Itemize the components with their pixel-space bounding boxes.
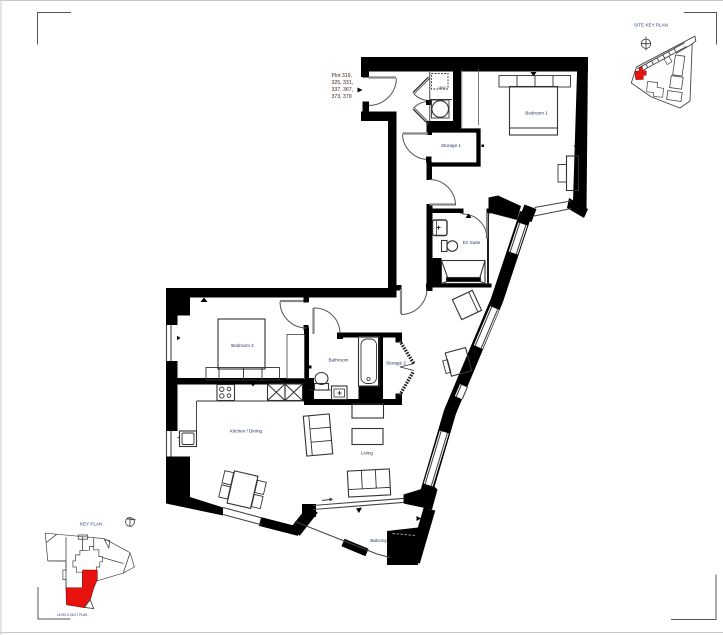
svg-text:Bedroom 1: Bedroom 1 <box>525 111 548 116</box>
svg-text:337, 367,: 337, 367, <box>332 87 354 93</box>
svg-text:Storage 1: Storage 1 <box>441 143 461 148</box>
svg-text:Kitchen / Dining: Kitchen / Dining <box>230 429 263 434</box>
svg-text:Storage 2: Storage 2 <box>386 361 406 366</box>
svg-text:Plot 319,: Plot 319, <box>332 73 352 79</box>
svg-text:Bedroom 2: Bedroom 2 <box>231 343 254 348</box>
svg-text:Bathroom: Bathroom <box>329 358 349 363</box>
svg-text:LEVELS 05-07 PLAN: LEVELS 05-07 PLAN <box>57 613 88 617</box>
svg-text:325, 331,: 325, 331, <box>332 80 354 86</box>
svg-text:SITE KEY PLAN: SITE KEY PLAN <box>634 23 668 28</box>
svg-text:Living: Living <box>361 451 373 456</box>
svg-text:Balcony: Balcony <box>370 538 387 543</box>
svg-text:KEY PLAN: KEY PLAN <box>80 522 102 527</box>
svg-text:373, 379: 373, 379 <box>332 94 352 100</box>
svg-text:WM: WM <box>438 85 445 90</box>
svg-text:En Suite: En Suite <box>463 240 481 245</box>
